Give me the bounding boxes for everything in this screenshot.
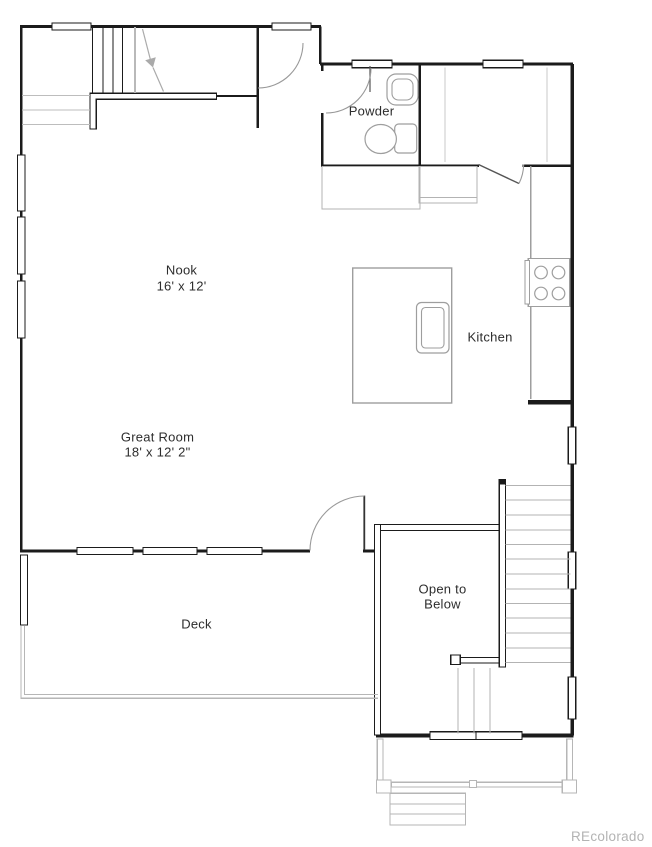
- stair-railing-cap: [499, 480, 505, 485]
- pantry-shelving: [445, 68, 547, 163]
- porch-post-right: [562, 780, 576, 793]
- toilet-tank: [395, 124, 417, 153]
- room-label-nook: Nook 16' x 12': [157, 263, 207, 294]
- window-pantry: [483, 60, 523, 67]
- porch-rail-joint: [470, 781, 477, 788]
- window-left-3: [18, 281, 25, 338]
- room-name: Great Room: [121, 429, 194, 445]
- window-greatroom-2: [143, 548, 197, 555]
- window-powder: [352, 60, 392, 67]
- arrow-shaft: [143, 29, 151, 60]
- pantry-door-swing: [519, 165, 524, 184]
- room-label-great-room: Great Room 18' x 12' 2": [121, 429, 194, 460]
- recolorado-watermark: REcolorado: [571, 829, 645, 844]
- pantry-door-leaf: [479, 165, 520, 184]
- range-cooktop-icon: [528, 259, 570, 307]
- window-top-2: [272, 23, 311, 30]
- stairs-down: [458, 486, 571, 734]
- stairwell-enclosure: [90, 93, 506, 735]
- stair-railing-bottom: [456, 658, 500, 664]
- arrow-head: [145, 57, 156, 67]
- deck-rail-inner: [25, 626, 378, 695]
- range-control-strip: [525, 261, 530, 305]
- window-left-1: [18, 155, 25, 211]
- hall-railing: [90, 93, 217, 129]
- room-label-deck: Deck: [181, 616, 212, 632]
- refrigerator-counter: [322, 167, 420, 210]
- stairs-up: [22, 27, 135, 125]
- stairwell-wall-top: [375, 525, 500, 531]
- deck-rail-outer: [21, 626, 378, 698]
- deck-outline: [21, 626, 378, 698]
- porch-rail-right: [567, 739, 573, 780]
- window-greatroom-1: [77, 548, 133, 555]
- stair-railing-vertical: [499, 480, 505, 668]
- room-name: Nook: [157, 263, 207, 279]
- window-top-1: [52, 23, 91, 30]
- room-dims: 16' x 12': [157, 278, 207, 294]
- stairs-up-direction-arrow-icon: [143, 29, 164, 92]
- toilet-icon: [365, 125, 396, 154]
- greatroom-door-swing: [310, 496, 365, 551]
- floor-plan-drawing: [0, 0, 652, 847]
- porch: [377, 739, 577, 825]
- room-label-open-to-below: Open to Below: [411, 581, 475, 612]
- porch-steps: [390, 793, 466, 825]
- window-right-1: [568, 427, 575, 464]
- hall-door-swing: [258, 43, 303, 88]
- arrow-tail: [153, 68, 164, 92]
- window-right-2: [568, 552, 575, 589]
- room-dims: 18' x 12' 2": [121, 445, 194, 461]
- room-label-powder: Powder: [349, 103, 395, 119]
- room-label-kitchen: Kitchen: [467, 329, 512, 345]
- exterior-walls: [20, 25, 574, 736]
- windows: [18, 23, 576, 739]
- porch-rail-left: [377, 739, 383, 780]
- kitchen-island-group: [353, 268, 452, 403]
- window-right-3: [568, 677, 575, 719]
- window-greatroom-3: [207, 548, 262, 555]
- window-deck-side: [21, 555, 28, 625]
- stair-newel-post: [451, 655, 461, 665]
- window-left-2: [18, 217, 25, 274]
- floor-plan: Powder Nook 16' x 12' Kitchen Great Room…: [0, 0, 652, 847]
- porch-post-left: [377, 780, 392, 793]
- stairwell-wall-left: [375, 525, 381, 736]
